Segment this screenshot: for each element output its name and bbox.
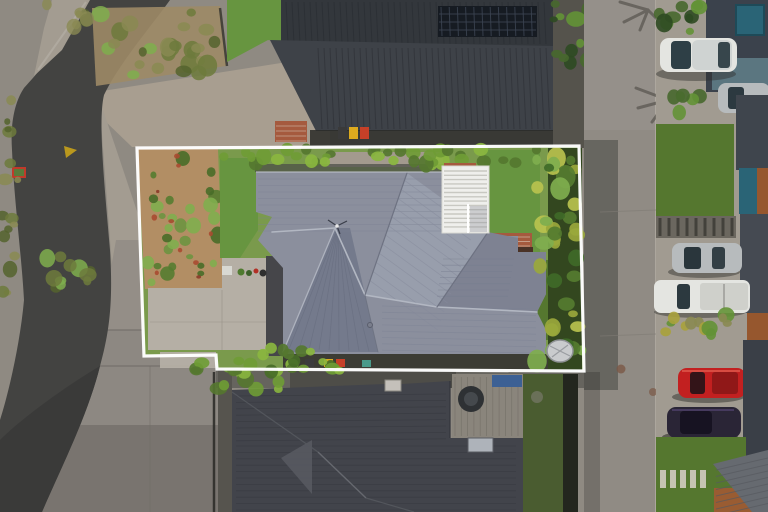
white-hatchback [656,38,737,81]
hedge-dark [563,374,578,512]
skylight [468,438,493,452]
silver-sedan [668,243,742,278]
white-louvre-pergola [442,163,489,233]
kerb-marker [13,168,25,177]
main-property [137,143,586,379]
bin-gray [338,127,347,139]
utility-box [222,266,232,275]
manhole-circle [649,388,657,396]
red-car [672,368,746,403]
roof-vent [368,323,373,328]
aerial-photo-canvas [0,0,768,512]
swimming-pool-2 [739,168,757,214]
tarp-covered-object [547,340,573,362]
bin-yellow [349,127,358,139]
bin-teal [362,360,371,367]
wood-deck-2 [747,313,768,340]
chimney-vent [385,380,401,391]
bin-blue [492,375,522,387]
right-lawn-top [656,124,734,216]
white-pickup [654,280,750,318]
right-properties [654,0,768,512]
right-house-wall [736,95,768,170]
bottom-lawn [523,374,563,512]
wood-deck [757,168,768,214]
swimming-pool [736,5,764,35]
red-pot [254,269,259,274]
bin-red [360,127,369,139]
bottom-neighbor-house [210,360,584,512]
manhole-circle [617,365,626,374]
water-tank [531,391,543,403]
aerial-photo [0,0,768,512]
right-house-wall-3 [743,340,768,462]
hedge-shadow-on-street [584,140,618,390]
brick-planter [275,121,307,142]
dark-pot [260,270,267,277]
